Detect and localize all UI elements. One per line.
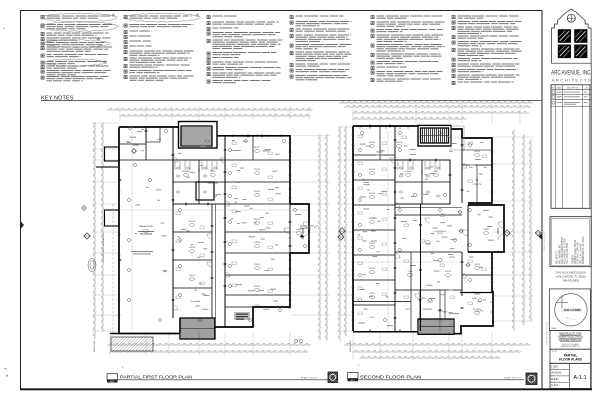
svg-text:OFFICE: OFFICE [254,264,261,266]
svg-text:A R C H I T E C T S: A R C H I T E C T S [552,79,591,83]
svg-text:OFFICE: OFFICE [189,247,196,249]
svg-text:FILE: FILE [190,301,194,303]
svg-text:MEN: MEN [211,171,216,173]
svg-text:STOR: STOR [438,311,443,313]
svg-text:AUG 1 2 2002: AUG 1 2 2002 [564,308,581,312]
svg-text:BY: BY [586,87,589,89]
svg-text:OFFICE: OFFICE [369,243,376,245]
svg-text:WOMEN: WOMEN [183,171,190,173]
svg-text:STOR: STOR [370,317,375,319]
svg-text:OFFICE: OFFICE [254,286,261,288]
svg-text:OFFICE: OFFICE [396,142,403,144]
svg-text:SCALE: 1/8"=1'-0": SCALE: 1/8"=1'-0" [504,377,521,380]
svg-text:ARCHITECT:: ARCHITECT: [556,250,559,264]
svg-text:A-1.1: A-1.1 [573,375,586,381]
svg-text:MATCHLINE: MATCHLINE [93,340,96,352]
svg-text:A1.0: A1.0 [110,380,114,383]
svg-text:RECPT: RECPT [254,147,261,149]
svg-text:MATCHLINE: MATCHLINE [349,340,352,352]
svg-text:OFFICE: OFFICE [189,275,196,277]
svg-text:EXISTING BLDG SEPARATION: EXISTING BLDG SEPARATION [102,233,105,262]
svg-text:8: 8 [358,365,360,367]
svg-text:C:\1500\A-11.DWG 04-15-01: C:\1500\A-11.DWG 04-15-01 [546,322,549,345]
svg-text:REV: REV [552,87,556,89]
svg-text:A1.0: A1.0 [351,379,355,382]
svg-text:ARC AVENUE, INC.: ARC AVENUE, INC. [558,243,561,264]
svg-text:OFFICE: OFFICE [474,151,481,153]
svg-text:OFFICE: OFFICE [254,242,261,244]
svg-text:LOBBY: LOBBY [296,229,303,231]
svg-text:OFFICE: OFFICE [254,191,261,193]
svg-text:HOLLYWOOD, FL 33020: HOLLYWOOD, FL 33020 [557,275,587,279]
svg-text:MEN: MEN [434,171,439,173]
svg-text:BREAK: BREAK [130,136,137,139]
svg-text:OFFICE: OFFICE [254,219,261,221]
svg-text:CONTRACTORS INC.: CONTRACTORS INC. [577,241,580,264]
svg-text:SEAL: SEAL [552,327,558,330]
svg-text:TITLE:: TITLE: [552,351,558,353]
svg-text:OFFICE: OFFICE [369,293,376,295]
svg-text:PEMBROKE PARK, FL: PEMBROKE PARK, FL [561,345,581,348]
svg-text:OFFICE: OFFICE [369,268,376,270]
svg-text:OFFICE: OFFICE [369,169,376,171]
svg-text:FLOOR PLANS: FLOOR PLANS [559,358,582,362]
svg-text:CORRIDOR: CORRIDOR [473,184,483,186]
svg-text:PRINTED: APRIL 2001: PRINTED: APRIL 2001 [543,232,546,250]
svg-text:OFFICE: OFFICE [189,221,196,223]
svg-text:CONTRACTORS INC.: CONTRACTORS INC. [559,339,583,342]
svg-text:ROOM: ROOM [437,233,443,235]
svg-text:PEMBROKE PK, FL 33009: PEMBROKE PK, FL 33009 [583,236,585,264]
svg-text:SCALE: 1/8"=1'-0": SCALE: 1/8"=1'-0" [301,377,318,380]
svg-text:CHECKED: CHECKED [551,387,557,389]
svg-text:PROJECT No.: PROJECT No. [551,368,559,370]
svg-text:B Y: ________: B Y: ________ [567,318,578,320]
svg-text:LOBBY: LOBBY [483,229,490,231]
svg-text:OFFICE: OFFICE [445,271,452,273]
svg-text:2341 HOLLYWOOD BLVD.: 2341 HOLLYWOOD BLVD. [555,271,586,275]
svg-text:OFFICE: OFFICE [474,264,481,266]
svg-text:OFFICE: OFFICE [254,169,261,171]
svg-text:GILBERT ELECTRICAL: GILBERT ELECTRICAL [574,239,577,264]
svg-text:DESCRIPTION: DESCRIPTION [567,87,579,89]
svg-text:DATE: DATE [557,86,562,89]
svg-text:04-15-01: 04-15-01 [551,371,562,375]
svg-text:OFFICE: OFFICE [369,193,376,195]
svg-text:CONF: CONF [156,139,162,141]
svg-text:OPEN: OPEN [408,271,414,273]
svg-text:8: 8 [122,367,124,369]
svg-text:2451 S.W. 31st AVE: 2451 S.W. 31st AVE [579,243,582,264]
svg-text:WOMEN: WOMEN [405,171,412,173]
svg-text:TEL: (954) 923-5836: TEL: (954) 923-5836 [567,242,569,264]
svg-text:WAREHOUSE: WAREHOUSE [139,225,154,228]
svg-text:R.E.B.: R.E.B. [551,377,559,381]
svg-text:STOR: STOR [255,305,260,307]
svg-text:OFFICE: OFFICE [369,142,376,144]
svg-text:G.R.C.: G.R.C. [551,383,559,387]
svg-text:ARC AVENUE, INC.: ARC AVENUE, INC. [551,70,592,77]
svg-text:1-500: 1-500 [551,364,558,368]
svg-text:954.923.5836: 954.923.5836 [563,279,579,283]
